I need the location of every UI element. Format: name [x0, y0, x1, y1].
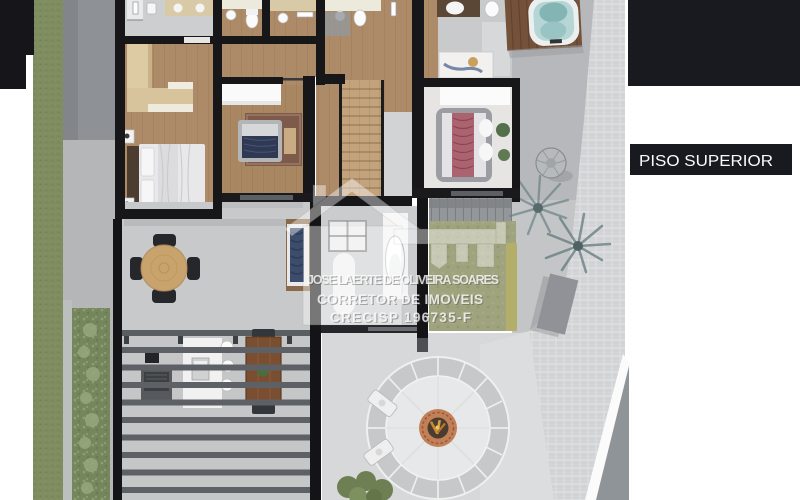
svg-text:PISO SUPERIOR: PISO SUPERIOR — [639, 153, 773, 170]
svg-text:CRECISP 196735-F: CRECISP 196735-F — [330, 310, 471, 325]
svg-text:JOSE LAERTE DE OLIVEIRA SOARES: JOSE LAERTE DE OLIVEIRA SOARES — [307, 273, 499, 287]
svg-text:CORRETOR DE IMOVEIS: CORRETOR DE IMOVEIS — [317, 292, 483, 307]
